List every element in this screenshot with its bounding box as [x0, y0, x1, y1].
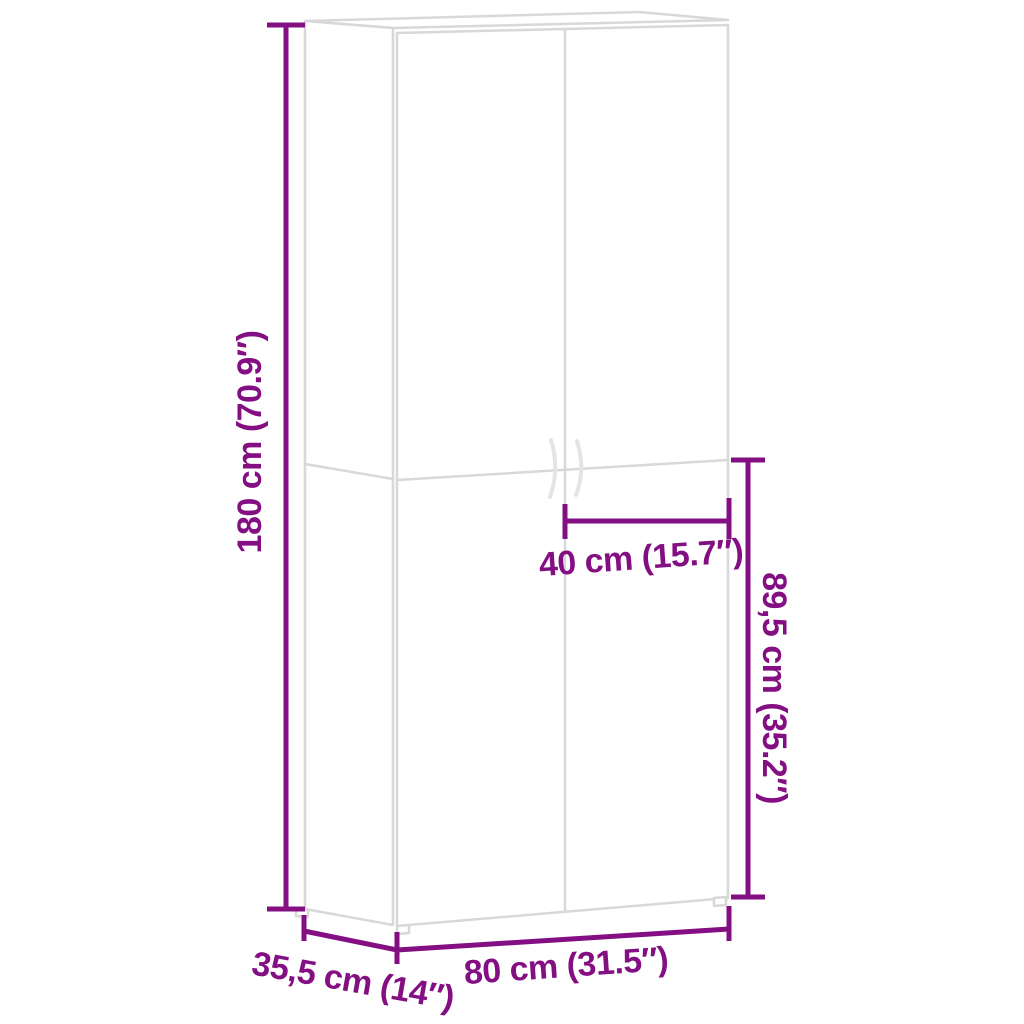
depth-dimension-label: 35,5 cm (14″) [249, 945, 457, 1018]
height-dimension: 180 cm (70.9″) [231, 25, 305, 909]
width-dimension-label: 80 cm (31.5″) [463, 940, 670, 992]
cabinet-side-panel [305, 21, 393, 925]
cabinet-foot-front-right [714, 897, 726, 906]
depth-dimension-line [304, 931, 397, 950]
cabinet-front-face [397, 25, 728, 926]
cabinet-outline [296, 12, 728, 934]
depth-dimension: 35,5 cm (14″) [249, 915, 457, 1017]
dimension-diagram: 180 cm (70.9″) 89,5 cm (35.2″) 40 cm (15… [0, 0, 1024, 1024]
wardrobe-dimension-drawing: 180 cm (70.9″) 89,5 cm (35.2″) 40 cm (15… [0, 0, 1024, 1024]
lower-height-dimension-label: 89,5 cm (35.2″) [755, 572, 793, 804]
lower-height-dimension: 89,5 cm (35.2″) [731, 460, 793, 897]
height-dimension-label: 180 cm (70.9″) [231, 331, 269, 554]
